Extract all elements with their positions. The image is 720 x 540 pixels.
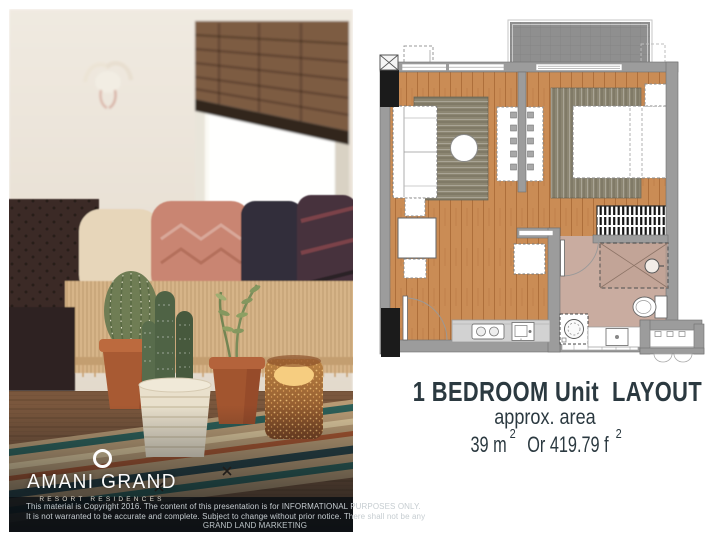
disclaimer-line-1: This material is Copyright 2016. The con… [26,502,450,512]
condenser-icon [650,330,694,362]
pillow-dark [241,201,303,293]
kitchen-sink-icon [512,323,534,341]
balcony-icon [508,20,652,69]
brand-name: AMANI GRAND [26,471,178,494]
plan-caption: 1 BEDROOM Unit LAYOUT approx. area 39 m2… [372,379,718,457]
foyer-table-icon [514,244,545,274]
pocket-door [519,231,553,236]
bed-icon [573,106,668,178]
lavatory-icon [588,327,640,347]
stove-icon [472,324,504,339]
round-table-icon [451,135,478,162]
shower-icon [600,243,668,288]
slide-canvas: AMANI GRAND RESORT RESIDENCES This mater… [0,0,720,540]
sofa-icon [393,106,437,198]
disclaimer: This material is Copyright 2016. The con… [26,502,450,531]
brand-logo: AMANI GRAND RESORT RESIDENCES [22,449,182,503]
plan-subtitle: approx. area [494,408,595,428]
plan-area: 39 m2 Or 419.79 f2 [468,429,622,456]
nightstand-icon [645,84,667,106]
pillow-salmon [151,201,251,295]
wardrobe-icon [597,206,670,236]
washing-machine-icon [560,314,588,344]
leather-arm [9,307,75,391]
plan-title: 1 BEDROOM Unit LAYOUT [413,379,702,405]
toilet-icon [633,296,667,318]
ring-icon [93,449,112,468]
disclaimer-line-2: It is not warranted to be accurate and c… [26,512,450,522]
floor-plan [375,12,720,372]
disclaimer-line-3: GRAND LAND MARKETING [26,521,450,531]
